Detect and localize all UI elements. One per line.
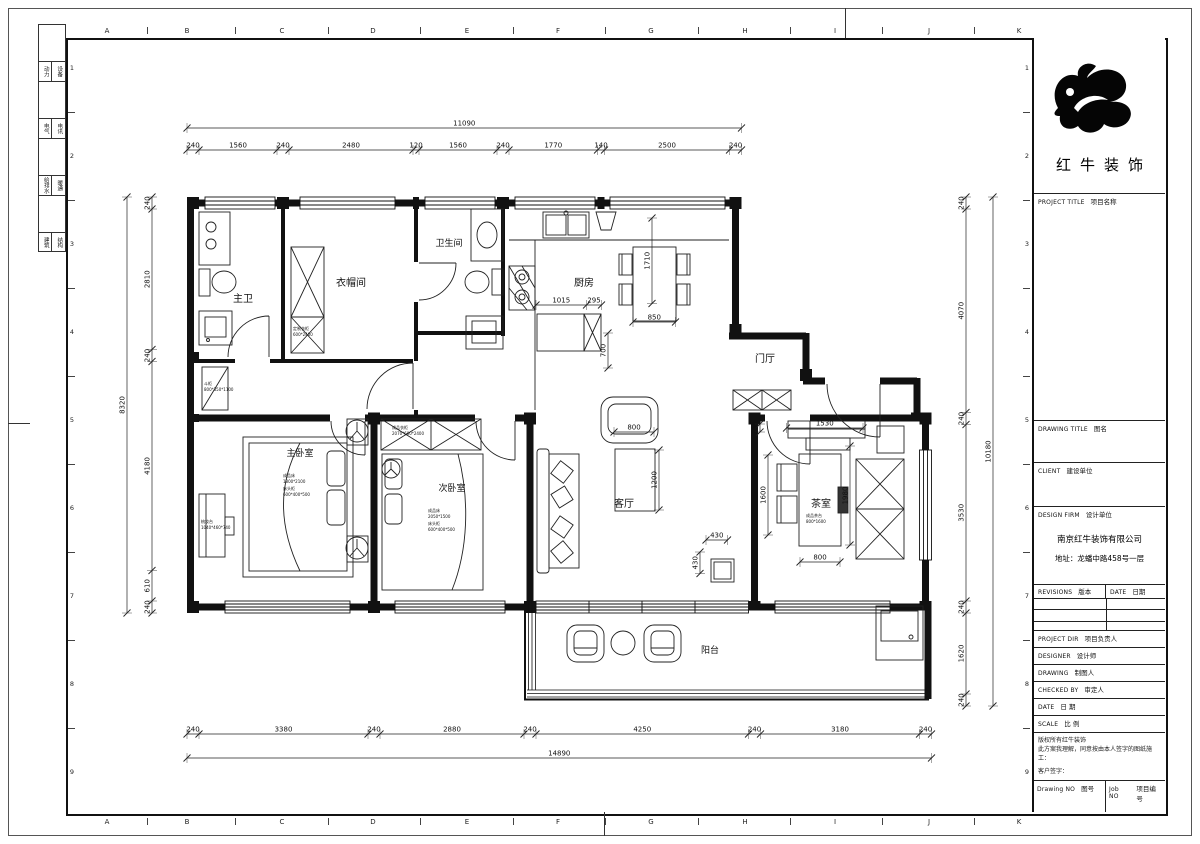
designer-label-zh: 设计师 — [1077, 650, 1097, 660]
svg-text:240: 240 — [958, 196, 966, 209]
drawing-title-label-en: DRAWING TITLE — [1038, 426, 1088, 433]
design-firm-label-zh: 设计单位 — [1086, 509, 1112, 519]
svg-text:2480: 2480 — [342, 142, 360, 150]
revision-row — [1034, 610, 1165, 621]
revisions-section: REVISIONS 版本 DATE 日期 — [1034, 584, 1165, 630]
project-dir-label-zh: 项目负责人 — [1085, 633, 1118, 643]
svg-text:240: 240 — [958, 412, 966, 425]
svg-text:1015: 1015 — [552, 297, 570, 305]
date-row: DATE 日 期 — [1034, 698, 1165, 715]
svg-text:定制衣柜: 定制衣柜 — [293, 325, 309, 331]
svg-text:1530: 1530 — [816, 420, 834, 428]
balcony-railing — [525, 601, 929, 700]
svg-text:2880: 2880 — [443, 726, 461, 734]
secondary-bedroom-furniture — [381, 419, 483, 590]
master-bedroom-furniture — [199, 419, 368, 577]
checked-by-row: CHECKED BY 审定人 — [1034, 681, 1165, 698]
kitchen-fixtures — [509, 211, 729, 410]
cloakroom-wardrobe — [291, 247, 324, 353]
svg-text:240: 240 — [958, 600, 966, 613]
project-title-section: PROJECT TITLE 项目名称 — [1034, 193, 1165, 420]
svg-text:8320: 8320 — [119, 396, 127, 414]
svg-text:240: 240 — [748, 726, 761, 734]
svg-text:240: 240 — [523, 726, 536, 734]
drawing-number-section: Drawing NO 图号 Job NO 项目编号 — [1034, 780, 1165, 812]
scale-label-en: SCALE — [1038, 721, 1058, 728]
guest-bath-fixtures — [465, 209, 503, 349]
svg-text:14890: 14890 — [548, 750, 570, 758]
svg-text:2500: 2500 — [658, 142, 676, 150]
svg-text:卫生间: 卫生间 — [435, 237, 462, 249]
svg-text:主卧室: 主卧室 — [286, 447, 313, 459]
svg-text:240: 240 — [367, 726, 380, 734]
drawing-sheet: AABBCCDDEEFFGGHHIIJJKK112233445566778899… — [0, 0, 1200, 844]
svg-text:10180: 10180 — [985, 440, 993, 462]
svg-text:160: 160 — [752, 421, 760, 434]
scale-label-zh: 比 例 — [1064, 718, 1079, 728]
svg-text:成品床: 成品床 — [428, 507, 440, 513]
svg-text:2050*1500: 2050*1500 — [428, 514, 451, 519]
svg-text:4250: 4250 — [633, 726, 651, 734]
svg-text:240: 240 — [144, 600, 152, 613]
walls-interior — [187, 197, 503, 421]
svg-text:门厅: 门厅 — [755, 352, 775, 365]
svg-text:阳台: 阳台 — [701, 644, 719, 656]
designer-row: DESIGNER 设计师 — [1034, 647, 1165, 664]
brand-name: 红牛装饰 — [1043, 154, 1165, 175]
svg-text:800: 800 — [813, 554, 826, 562]
svg-text:240: 240 — [186, 726, 199, 734]
project-dir-row: PROJECT DIR 项目负责人 — [1034, 630, 1165, 647]
svg-text:厨房: 厨房 — [574, 276, 594, 289]
balcony-furniture — [567, 606, 923, 662]
project-title-label-en: PROJECT TITLE — [1038, 199, 1085, 206]
svg-text:次卧室: 次卧室 — [438, 482, 465, 494]
checked-by-label-en: CHECKED BY — [1038, 687, 1078, 694]
revisions-label-zh: 版本 — [1078, 586, 1091, 596]
svg-text:3380: 3380 — [275, 726, 293, 734]
svg-text:800: 800 — [627, 424, 640, 432]
svg-text:1560: 1560 — [449, 142, 467, 150]
svg-text:茶室: 茶室 — [811, 497, 831, 510]
revision-row — [1034, 622, 1165, 630]
drawing-label-en: DRAWING — [1038, 670, 1069, 677]
master-bath-fixtures — [199, 212, 236, 345]
svg-text:1710: 1710 — [644, 252, 652, 270]
svg-text:1600: 1600 — [760, 486, 768, 504]
drawing-title-label-zh: 图名 — [1094, 423, 1107, 433]
svg-text:1620: 1620 — [958, 645, 966, 663]
wall-piers — [187, 197, 932, 613]
date-label-zh: 日 期 — [1060, 701, 1075, 711]
svg-text:240: 240 — [729, 142, 742, 150]
svg-text:140: 140 — [594, 142, 607, 150]
svg-text:700: 700 — [600, 344, 608, 357]
revision-row — [1034, 599, 1165, 610]
date-label-en: DATE — [1038, 704, 1054, 711]
svg-text:430: 430 — [692, 556, 700, 569]
svg-text:4070: 4070 — [958, 302, 966, 320]
svg-text:240: 240 — [496, 142, 509, 150]
svg-text:成品衣柜: 成品衣柜 — [392, 424, 408, 430]
svg-text:2810: 2810 — [144, 270, 152, 288]
svg-text:1200: 1200 — [651, 471, 659, 489]
checked-by-label-zh: 审定人 — [1084, 684, 1104, 694]
copyright-section: 版权所有红牛装饰 此方案我理解，同意按由本人签字的图纸施工： 客户签字： — [1034, 732, 1165, 780]
tea-room-furniture — [777, 421, 904, 559]
svg-text:床头柜: 床头柜 — [283, 485, 295, 491]
svg-text:3530: 3530 — [958, 504, 966, 522]
client-section: CLIENT 建设单位 — [1034, 462, 1165, 506]
svg-text:4180: 4180 — [144, 457, 152, 475]
svg-text:斗柜: 斗柜 — [204, 380, 212, 386]
svg-text:11090: 11090 — [453, 120, 475, 128]
floor-plan-svg: 1109024015602402480120156024017701402500… — [0, 0, 1200, 844]
svg-text:3180: 3180 — [831, 726, 849, 734]
svg-text:1770: 1770 — [544, 142, 562, 150]
svg-text:2070*600*2400: 2070*600*2400 — [392, 431, 424, 436]
job-no-label-en: Job NO — [1109, 786, 1130, 800]
job-no-label-zh: 项目编号 — [1136, 783, 1162, 803]
svg-text:600*400*500: 600*400*500 — [283, 492, 310, 497]
drawing-label-zh: 制图人 — [1075, 667, 1095, 677]
svg-text:240: 240 — [276, 142, 289, 150]
project-dir-label-en: PROJECT DIR — [1038, 636, 1079, 643]
svg-text:床头柜: 床头柜 — [428, 520, 440, 526]
company-logo-area: 红牛装饰 — [1034, 38, 1165, 193]
revisions-label-en: REVISIONS — [1038, 589, 1072, 596]
drawing-title-section: DRAWING TITLE 图名 — [1034, 420, 1165, 462]
title-block: 红牛装饰 PROJECT TITLE 项目名称 DRAWING TITLE 图名… — [1032, 38, 1165, 812]
bull-logo-icon — [1040, 56, 1160, 146]
svg-text:主卫: 主卫 — [233, 293, 253, 305]
customer-sign-label: 客户签字： — [1038, 767, 1161, 776]
doors — [228, 263, 880, 464]
svg-text:295: 295 — [587, 297, 600, 305]
svg-text:800*350*1100: 800*350*1100 — [204, 387, 234, 392]
svg-text:成品茶台: 成品茶台 — [806, 512, 822, 518]
svg-text:240: 240 — [919, 726, 932, 734]
svg-text:衣帽间: 衣帽间 — [336, 276, 366, 289]
copyright-line2: 此方案我理解，同意按由本人签字的图纸施工： — [1038, 745, 1161, 763]
svg-text:120: 120 — [409, 142, 422, 150]
drawing-no-label-en: Drawing NO — [1037, 786, 1075, 793]
scale-row: SCALE 比 例 — [1034, 715, 1165, 732]
svg-text:1560: 1560 — [229, 142, 247, 150]
company-address: 地址：龙蟠中路458号一层 — [1034, 553, 1165, 564]
svg-text:240: 240 — [144, 349, 152, 362]
drawing-row: DRAWING 制图人 — [1034, 664, 1165, 681]
date-col-label-zh: 日期 — [1132, 586, 1145, 596]
svg-text:1800*2100: 1800*2100 — [283, 479, 306, 484]
dimension-lines: 1109024015602402480120156024017701402500… — [119, 120, 999, 764]
svg-text:客厅: 客厅 — [614, 497, 634, 510]
svg-text:240: 240 — [186, 142, 199, 150]
drawing-no-label-zh: 图号 — [1081, 783, 1094, 793]
svg-text:600*400*500: 600*400*500 — [428, 527, 455, 532]
svg-text:850: 850 — [648, 314, 661, 322]
company-name: 南京红牛装饰有限公司 — [1034, 533, 1165, 545]
svg-text:1980: 1980 — [842, 487, 850, 505]
client-label-en: CLIENT — [1038, 468, 1060, 475]
walls-exterior — [187, 197, 932, 699]
svg-text:240: 240 — [144, 196, 152, 209]
date-col-label-en: DATE — [1110, 589, 1126, 596]
svg-text:430: 430 — [710, 532, 723, 540]
svg-text:成品床: 成品床 — [283, 472, 295, 478]
svg-text:1040*460*740: 1040*460*740 — [201, 525, 231, 530]
design-firm-label-en: DESIGN FIRM — [1038, 512, 1080, 519]
client-label-zh: 建设单位 — [1066, 465, 1092, 475]
svg-text:600*2400: 600*2400 — [293, 332, 313, 337]
svg-text:梳妆台: 梳妆台 — [201, 518, 213, 524]
svg-text:610: 610 — [144, 579, 152, 592]
project-title-label-zh: 项目名称 — [1091, 196, 1117, 206]
design-firm-section: DESIGN FIRM 设计单位 南京红牛装饰有限公司 地址：龙蟠中路458号一… — [1034, 506, 1165, 584]
windows — [205, 197, 932, 613]
copyright-line1: 版权所有红牛装饰 — [1038, 736, 1161, 745]
svg-text:240: 240 — [958, 693, 966, 706]
designer-label-en: DESIGNER — [1038, 653, 1071, 660]
svg-text:800*1600: 800*1600 — [806, 519, 826, 524]
